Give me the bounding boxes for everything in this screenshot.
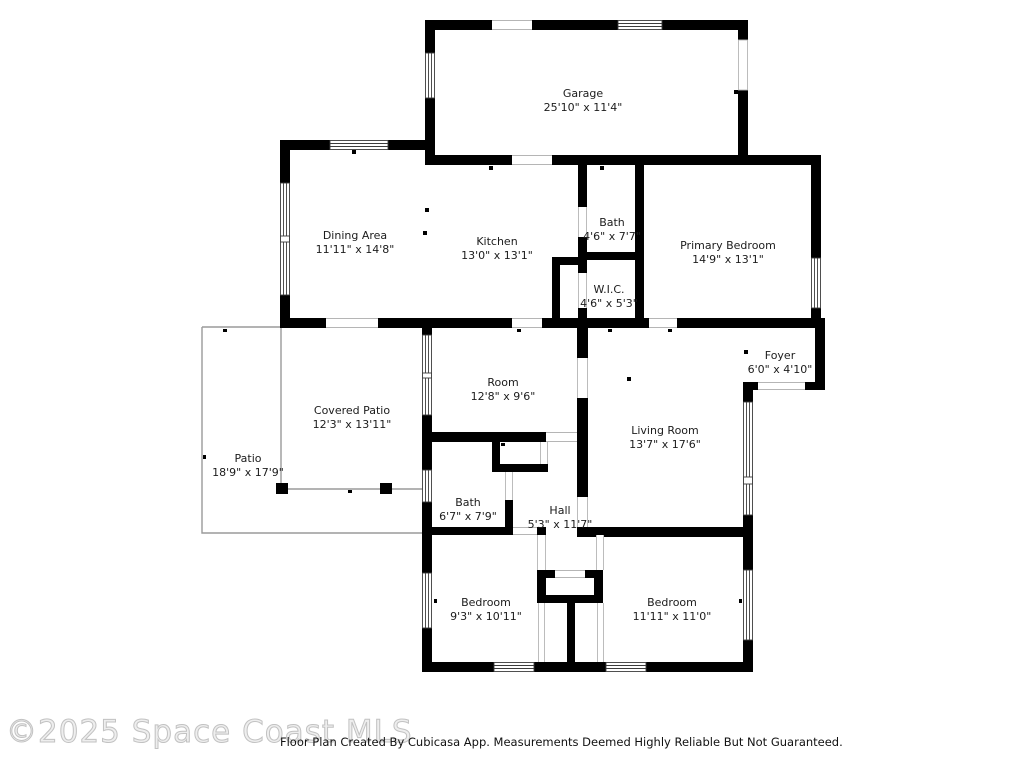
room-label-room: Room 12'8" x 9'6" xyxy=(471,376,536,403)
room-label-patio: Patio 18'9" x 17'9" xyxy=(212,452,284,479)
floor-plan-page: Garage 25'10" x 11'4" Dining Area 11'11"… xyxy=(0,0,1024,768)
room-label-primary-bedroom: Primary Bedroom 14'9" x 13'1" xyxy=(680,239,776,266)
openings-layer xyxy=(326,20,805,662)
disclaimer-text: Floor Plan Created By Cubicasa App. Meas… xyxy=(280,735,843,749)
room-label-kitchen: Kitchen 13'0" x 13'1" xyxy=(461,235,533,262)
room-label-foyer: Foyer 6'0" x 4'10" xyxy=(748,349,813,376)
room-label-hall: Hall 5'3" x 11'7" xyxy=(528,504,593,531)
room-label-covered-patio: Covered Patio 12'3" x 13'11" xyxy=(313,404,392,431)
room-label-wic: W.I.C. 4'6" x 5'3" xyxy=(580,283,638,310)
room-label-garage: Garage 25'10" x 11'4" xyxy=(544,87,623,114)
room-label-bedroom-2: Bedroom 11'11" x 11'0" xyxy=(633,596,712,623)
room-label-bath-upper: Bath 4'6" x 7'7" xyxy=(583,216,641,243)
tick-marks xyxy=(203,23,748,669)
room-label-living-room: Living Room 13'7" x 17'6" xyxy=(629,424,701,451)
room-label-bedroom-1: Bedroom 9'3" x 10'11" xyxy=(450,596,522,623)
room-label-dining-area: Dining Area 11'11" x 14'8" xyxy=(316,229,395,256)
room-label-bath-lower: Bath 6'7" x 7'9" xyxy=(439,496,497,523)
